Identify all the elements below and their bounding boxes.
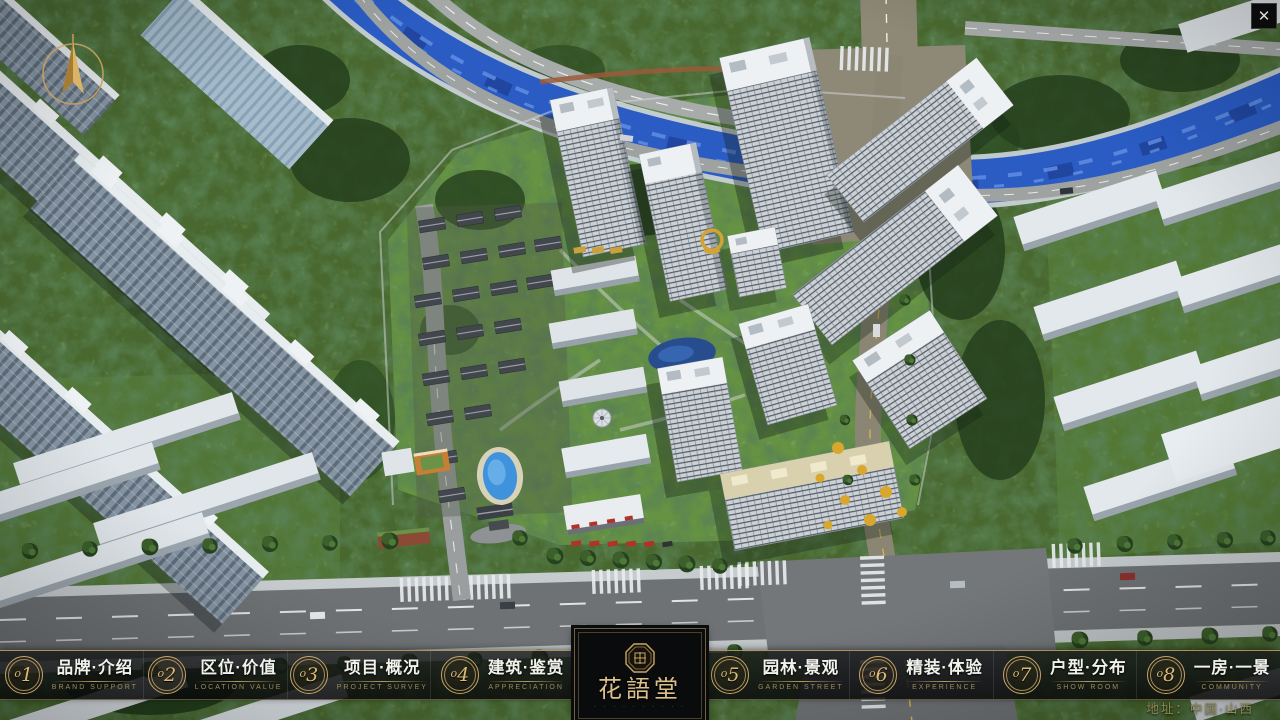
menu-label-en: SHOW ROOM bbox=[1057, 684, 1121, 691]
seal-emblem-icon bbox=[624, 642, 656, 674]
menu-label-en: BRAND SUPPORT bbox=[52, 684, 138, 691]
gold-divider bbox=[488, 681, 565, 682]
menu-item-interior-experience[interactable]: o6 精装·体验 EXPERIENCE bbox=[850, 651, 994, 699]
menu-label-zh: 建筑·鉴赏 bbox=[488, 659, 565, 677]
close-icon: ✕ bbox=[1258, 7, 1271, 25]
address-text: 地址：中国·山西 bbox=[1146, 698, 1254, 717]
menu-label-en: GARDEN STREET bbox=[758, 684, 844, 691]
menu-label-en: APPRECIATION bbox=[488, 684, 564, 691]
menu-item-project-overview[interactable]: o3 项目·概况 PROJECT SURVEY bbox=[288, 651, 432, 699]
menu-number-badge: o6 bbox=[859, 656, 897, 694]
menu-number-badge: o3 bbox=[290, 656, 328, 694]
presentation-window: ✕ o1 品牌·介绍 BRAND SUPPORT o2 区位·价值 LOCATI… bbox=[0, 0, 1280, 720]
gold-divider bbox=[337, 681, 428, 682]
menu-item-location-value[interactable]: o2 区位·价值 LOCATION VALUE bbox=[144, 651, 288, 699]
menu-label-zh: 一房·一景 bbox=[1194, 659, 1271, 677]
menu-label-en: LOCATION VALUE bbox=[195, 684, 283, 691]
masterplan-3d-viewport[interactable] bbox=[0, 0, 1280, 720]
gold-divider bbox=[1194, 681, 1271, 682]
project-logo[interactable]: 花語堂 · · · · · · · · · · bbox=[574, 628, 706, 720]
menu-number-badge: o4 bbox=[441, 656, 479, 694]
menu-number-badge: o8 bbox=[1147, 656, 1185, 694]
menu-label-en: PROJECT SURVEY bbox=[337, 684, 428, 691]
menu-item-architecture[interactable]: o4 建筑·鉴赏 APPRECIATION bbox=[431, 651, 574, 699]
menu-label-zh: 园林·景观 bbox=[763, 659, 840, 677]
gold-divider bbox=[52, 681, 138, 682]
menu-item-brand-intro[interactable]: o1 品牌·介绍 BRAND SUPPORT bbox=[0, 651, 144, 699]
menu-item-room-view[interactable]: o8 一房·一景 COMMUNITY bbox=[1137, 651, 1280, 699]
menu-label-en: EXPERIENCE bbox=[912, 684, 977, 691]
menu-label-zh: 项目·概况 bbox=[344, 659, 421, 677]
gold-divider bbox=[1050, 681, 1127, 682]
bottom-menu-bar: o1 品牌·介绍 BRAND SUPPORT o2 区位·价值 LOCATION… bbox=[0, 650, 1280, 700]
menu-label-en: COMMUNITY bbox=[1202, 684, 1263, 691]
menu-number-badge: o5 bbox=[711, 656, 749, 694]
menu-label-zh: 品牌·介绍 bbox=[57, 659, 134, 677]
menu-label-zh: 精装·体验 bbox=[906, 659, 983, 677]
logo-subtext: · · · · · · · · · · bbox=[594, 704, 686, 710]
gold-divider bbox=[758, 681, 844, 682]
vignette bbox=[0, 0, 1280, 720]
close-button[interactable]: ✕ bbox=[1251, 3, 1277, 29]
menu-number-badge: o2 bbox=[148, 656, 186, 694]
menu-number-badge: o7 bbox=[1003, 656, 1041, 694]
menu-label-zh: 区位·价值 bbox=[200, 659, 277, 677]
menu-label-zh: 户型·分布 bbox=[1050, 659, 1127, 677]
menu-item-garden-landscape[interactable]: o5 园林·景观 GARDEN STREET bbox=[706, 651, 850, 699]
gold-divider bbox=[906, 681, 983, 682]
gold-divider bbox=[195, 681, 283, 682]
menu-item-floorplan-distribution[interactable]: o7 户型·分布 SHOW ROOM bbox=[994, 651, 1138, 699]
menu-number-badge: o1 bbox=[5, 656, 43, 694]
logo-title: 花語堂 bbox=[598, 677, 682, 701]
